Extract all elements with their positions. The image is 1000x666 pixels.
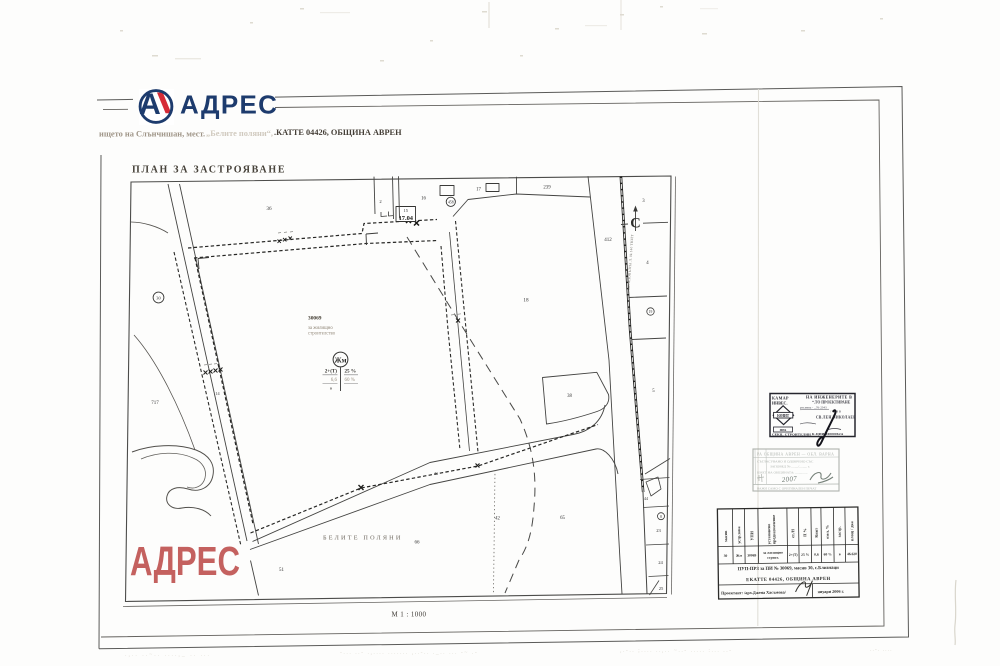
svg-text:18: 18 bbox=[523, 298, 529, 304]
svg-text:“.ТО ПРОЕКТИРАНЕ: “.ТО ПРОЕКТИРАНЕ bbox=[812, 400, 851, 405]
svg-text:озел. %: озел. % bbox=[825, 525, 830, 539]
svg-text:ет./Н: ет./Н bbox=[790, 528, 795, 538]
svg-text:51: 51 bbox=[279, 568, 285, 573]
svg-text:717: 717 bbox=[151, 401, 159, 406]
svg-text:в: в bbox=[839, 552, 841, 556]
svg-text:ЗАПОВЕД № ......../.........: ЗАПОВЕД № ......../......... г. bbox=[770, 465, 810, 469]
svg-text:ПРА: ПРА bbox=[780, 428, 787, 432]
svg-text:15: 15 bbox=[404, 208, 409, 213]
svg-text:застр.: застр. bbox=[837, 526, 842, 537]
svg-text:412: 412 bbox=[604, 238, 612, 243]
svg-text:17: 17 bbox=[476, 188, 481, 193]
svg-text:41: 41 bbox=[434, 471, 438, 476]
svg-text:30069: 30069 bbox=[747, 553, 756, 557]
svg-text:25 %: 25 % bbox=[345, 369, 356, 375]
svg-text:Кинт: Кинт bbox=[814, 528, 819, 538]
svg-text:Жм: Жм bbox=[736, 554, 743, 558]
svg-text:30: 30 bbox=[724, 554, 728, 558]
svg-text:38: 38 bbox=[567, 394, 572, 399]
svg-text:23: 23 bbox=[656, 528, 661, 533]
svg-text:.КАТТЕ 04426, ОБЩИНА АВРЕН: .КАТТЕ 04426, ОБЩИНА АВРЕН bbox=[274, 128, 402, 137]
svg-text:площ / дка: площ / дка bbox=[849, 521, 854, 541]
svg-text:УПИ: УПИ bbox=[749, 530, 754, 540]
svg-text:НА ИНЖЕНЕРИТЕ В: НА ИНЖЕНЕРИТЕ В bbox=[806, 395, 852, 400]
svg-text:ЮНИТ: ЮНИТ bbox=[777, 414, 790, 418]
svg-text:2+(Т): 2+(Т) bbox=[789, 553, 798, 557]
svg-text:СЕКЦ. СТРОИТЕЛНИ: СЕКЦ. СТРОИТЕЛНИ bbox=[772, 433, 811, 437]
svg-text:19: 19 bbox=[649, 310, 653, 314]
svg-text:25 %: 25 % bbox=[801, 553, 810, 557]
svg-text:60 %: 60 % bbox=[345, 378, 355, 383]
svg-text:44: 44 bbox=[644, 496, 648, 501]
svg-text:за жилищно: за жилищно bbox=[308, 326, 333, 331]
svg-text:М 1 : 1000: М 1 : 1000 bbox=[392, 611, 427, 619]
svg-text:Жм: Жм bbox=[334, 356, 346, 364]
svg-text:25: 25 bbox=[659, 586, 664, 591]
svg-text:65: 65 bbox=[560, 516, 565, 521]
svg-text:АДРЕС: АДРЕС bbox=[130, 538, 240, 584]
svg-text:24: 24 bbox=[658, 560, 663, 565]
svg-text:ПЛАН ЗА ЗАСТРОЯВАНЕ: ПЛАН ЗА ЗАСТРОЯВАНЕ bbox=[132, 165, 286, 176]
svg-text:РА ОБЩИНА АВРЕН — ОБЛ. ВАРНА: РА ОБЩИНА АВРЕН — ОБЛ. ВАРНА bbox=[757, 453, 834, 457]
svg-text:С: С bbox=[630, 216, 640, 232]
svg-text:предназначение: предназначение bbox=[771, 515, 776, 545]
svg-text:6,6: 6,6 bbox=[331, 378, 338, 383]
svg-text:устр.зона: устр.зона bbox=[736, 526, 741, 543]
svg-text:16: 16 bbox=[421, 197, 426, 202]
svg-text:ИНВЕС.: ИНВЕС. bbox=[772, 401, 787, 406]
svg-text:БЕЛИТЕ ПОЛЯНИ: БЕЛИТЕ ПОЛЯНИ bbox=[323, 535, 403, 542]
svg-text:„Белите поляни“,: „Белите поляни“, bbox=[206, 129, 273, 138]
svg-text:П %: П % bbox=[802, 528, 807, 536]
svg-text:за жилищно: за жилищно bbox=[763, 551, 783, 555]
svg-text:0,6: 0,6 bbox=[814, 553, 819, 557]
svg-text:2007: 2007 bbox=[781, 475, 797, 484]
svg-text:-... ..- .,.... ....... ,..-..: -... ..- .,.... ....... ,..-.. ._.. ... … bbox=[340, 650, 478, 656]
svg-text:36: 36 bbox=[266, 206, 272, 212]
svg-text:42: 42 bbox=[495, 517, 500, 522]
svg-text:януари 2006 г.: януари 2006 г. bbox=[818, 589, 845, 594]
svg-text:СВ.ЛЕН НИКОЛАЕВ: СВ.ЛЕН НИКОЛАЕВ bbox=[816, 415, 856, 419]
svg-text:КМЕТ НА ОБЩИНАТА: ............: КМЕТ НА ОБЩИНАТА: .............. bbox=[757, 471, 808, 475]
svg-text:строителство: строителство bbox=[308, 332, 336, 337]
svg-text:60 %: 60 % bbox=[824, 552, 833, 556]
svg-text:,.-.. ;.... ..,.. ~..- ..... :: ,.-.. ;.... ..,.. ~..- ..... :... ..- bbox=[620, 648, 733, 654]
svg-text:ището на Слънчишан, мест.: ището на Слънчишан, мест. bbox=[99, 130, 205, 139]
svg-text:..-. ....: ..-. .... bbox=[870, 647, 893, 653]
svg-text:239: 239 bbox=[543, 186, 551, 191]
svg-text:К-ЦИИ 00000062А: К-ЦИИ 00000062А bbox=[812, 432, 844, 436]
svg-text:Проектант: /арх.Джена Хасъмова: Проектант: /арх.Джена Хасъмова/ bbox=[721, 590, 787, 596]
svg-text:2+(Т): 2+(Т) bbox=[325, 368, 338, 375]
svg-text:АДРЕС: АДРЕС bbox=[180, 90, 278, 120]
svg-text:строит.: строит. bbox=[767, 556, 779, 560]
svg-text:46.620: 46.620 bbox=[847, 552, 857, 556]
svg-text:8: 8 bbox=[660, 515, 662, 519]
svg-text:масив: масив bbox=[723, 530, 728, 542]
svg-text:66: 66 bbox=[415, 541, 421, 546]
svg-text:СЪГЛАСУВАНО И ОДОБРЕНО СЪС: СЪГЛАСУВАНО И ОДОБРЕНО СЪС bbox=[757, 460, 814, 464]
svg-text:17.04: 17.04 bbox=[399, 215, 414, 222]
svg-text:.,.. ..~.. ....,_ .. ...: .,.. ..~.. ....,_ .. ... bbox=[125, 652, 211, 658]
svg-text:458: 458 bbox=[448, 201, 454, 205]
svg-text:30069: 30069 bbox=[308, 316, 322, 322]
svg-text:ВАЖИ САМО С ОРИГИНАЛЕН ПЕЧ: ВАЖИ САМО С ОРИГИНАЛЕН ПЕЧАТ bbox=[757, 487, 817, 491]
